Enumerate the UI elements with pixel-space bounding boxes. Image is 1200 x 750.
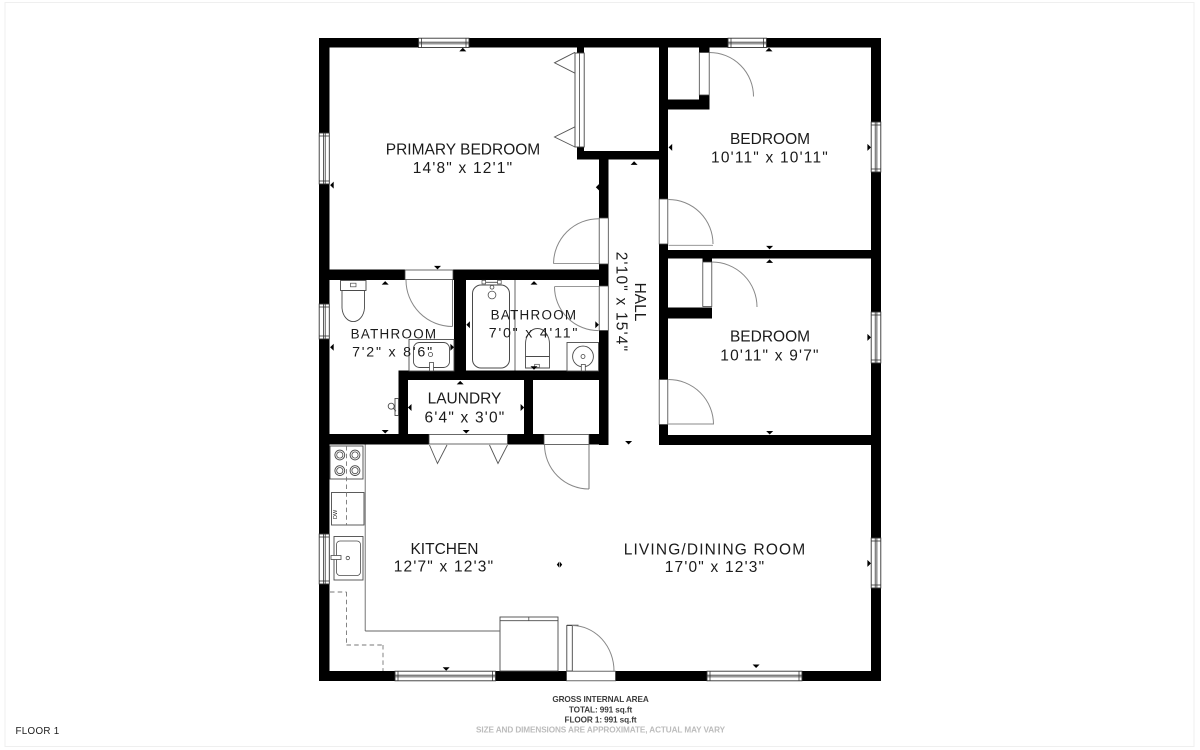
svg-text:TOTAL: 991 sq.ft: TOTAL: 991 sq.ft bbox=[569, 705, 633, 714]
svg-text:7'2" x 8'6": 7'2" x 8'6" bbox=[352, 345, 434, 361]
svg-text:12'7" x 12'3": 12'7" x 12'3" bbox=[394, 559, 495, 576]
svg-text:BATHROOM: BATHROOM bbox=[351, 327, 438, 342]
svg-text:2'10" x 15'4": 2'10" x 15'4" bbox=[613, 252, 630, 353]
svg-text:10'11" x 10'11": 10'11" x 10'11" bbox=[711, 150, 829, 167]
svg-text:KITCHEN: KITCHEN bbox=[410, 541, 478, 558]
svg-text:BEDROOM: BEDROOM bbox=[730, 131, 810, 148]
svg-text:17'0" x 12'3": 17'0" x 12'3" bbox=[665, 559, 766, 576]
svg-text:7'0" x 4'11": 7'0" x 4'11" bbox=[489, 326, 579, 342]
svg-text:BATHROOM: BATHROOM bbox=[491, 308, 578, 323]
svg-text:FLOOR 1: FLOOR 1 bbox=[16, 726, 60, 737]
svg-text:HALL: HALL bbox=[631, 283, 648, 322]
svg-text:PRIMARY BEDROOM: PRIMARY BEDROOM bbox=[386, 142, 540, 159]
svg-text:14'8" x 12'1": 14'8" x 12'1" bbox=[413, 160, 514, 177]
svg-text:LAUNDRY: LAUNDRY bbox=[428, 391, 502, 408]
svg-text:6'4" x 3'0": 6'4" x 3'0" bbox=[425, 409, 506, 426]
svg-text:DW: DW bbox=[333, 509, 339, 519]
svg-text:LIVING/DINING ROOM: LIVING/DINING ROOM bbox=[624, 542, 807, 559]
svg-text:GROSS INTERNAL AREA: GROSS INTERNAL AREA bbox=[552, 695, 649, 704]
svg-text:FLOOR 1: 991 sq.ft: FLOOR 1: 991 sq.ft bbox=[565, 716, 637, 725]
svg-text:10'11" x 9'7": 10'11" x 9'7" bbox=[720, 348, 819, 365]
svg-text:SIZE AND DIMENSIONS ARE APPROX: SIZE AND DIMENSIONS ARE APPROXIMATE, ACT… bbox=[476, 725, 726, 734]
svg-text:BEDROOM: BEDROOM bbox=[730, 329, 810, 346]
